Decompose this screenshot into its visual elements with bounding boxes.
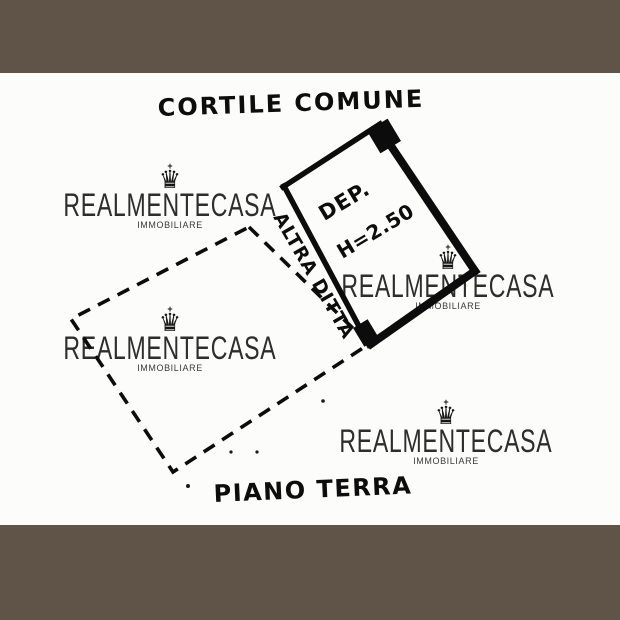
- ink-speck: [229, 450, 232, 453]
- adjacent-property-label: ALTRA DITTA: [269, 209, 358, 343]
- floor-label: PIANO TERRA: [213, 471, 413, 508]
- plan-drawing: CORTILE COMUNE DEP. H=2.50 ALTRA DITTA P…: [0, 0, 620, 620]
- floorplan-scan: + ♛ REALMENTECASA IMMOBILIARE + ♛ REALME…: [0, 0, 620, 620]
- courtyard-label: CORTILE COMUNE: [157, 85, 424, 122]
- room-wall-top-left: [283, 124, 380, 187]
- room-label-dep: DEP.: [315, 176, 375, 225]
- ink-speck: [255, 450, 258, 453]
- room-wall-bottom-right: [371, 271, 475, 344]
- ink-speck: [186, 484, 190, 488]
- ink-speck: [321, 399, 325, 403]
